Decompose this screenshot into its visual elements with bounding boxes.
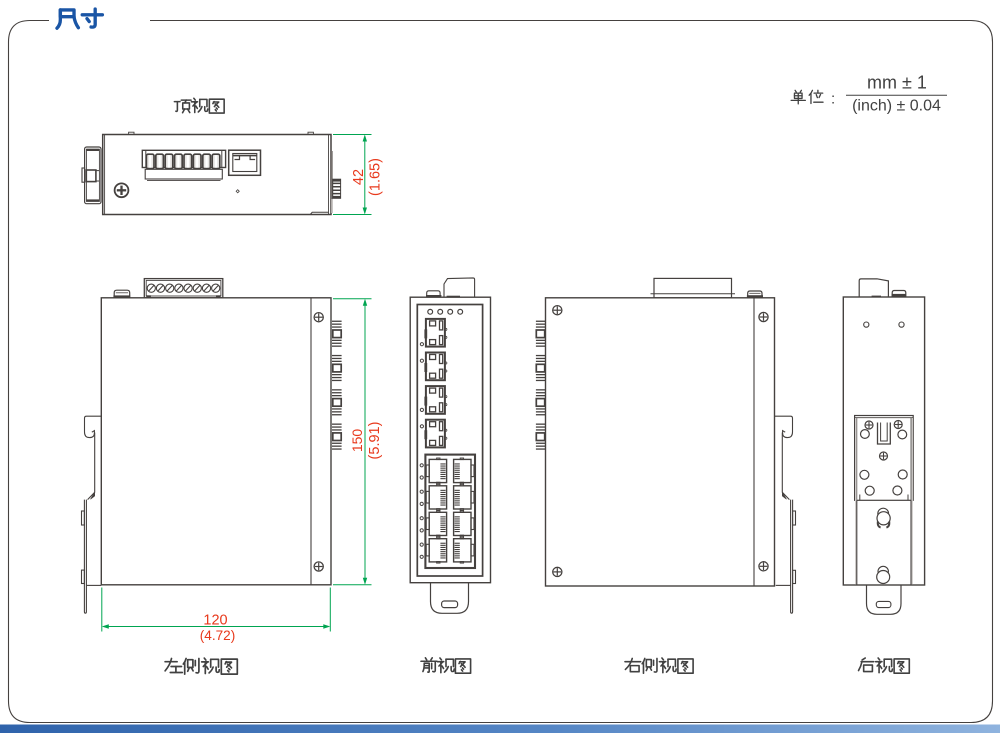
svg-text::: : <box>831 91 835 108</box>
svg-text:150: 150 <box>349 429 365 453</box>
svg-text:42: 42 <box>351 169 367 185</box>
svg-text:120: 120 <box>203 613 227 629</box>
svg-text:(4.72): (4.72) <box>200 628 236 643</box>
svg-text:(5.91): (5.91) <box>367 422 383 460</box>
svg-text:(inch) ± 0.04: (inch) ± 0.04 <box>852 98 941 115</box>
svg-text:mm ± 1: mm ± 1 <box>867 73 927 93</box>
svg-text:(1.65): (1.65) <box>368 158 384 196</box>
